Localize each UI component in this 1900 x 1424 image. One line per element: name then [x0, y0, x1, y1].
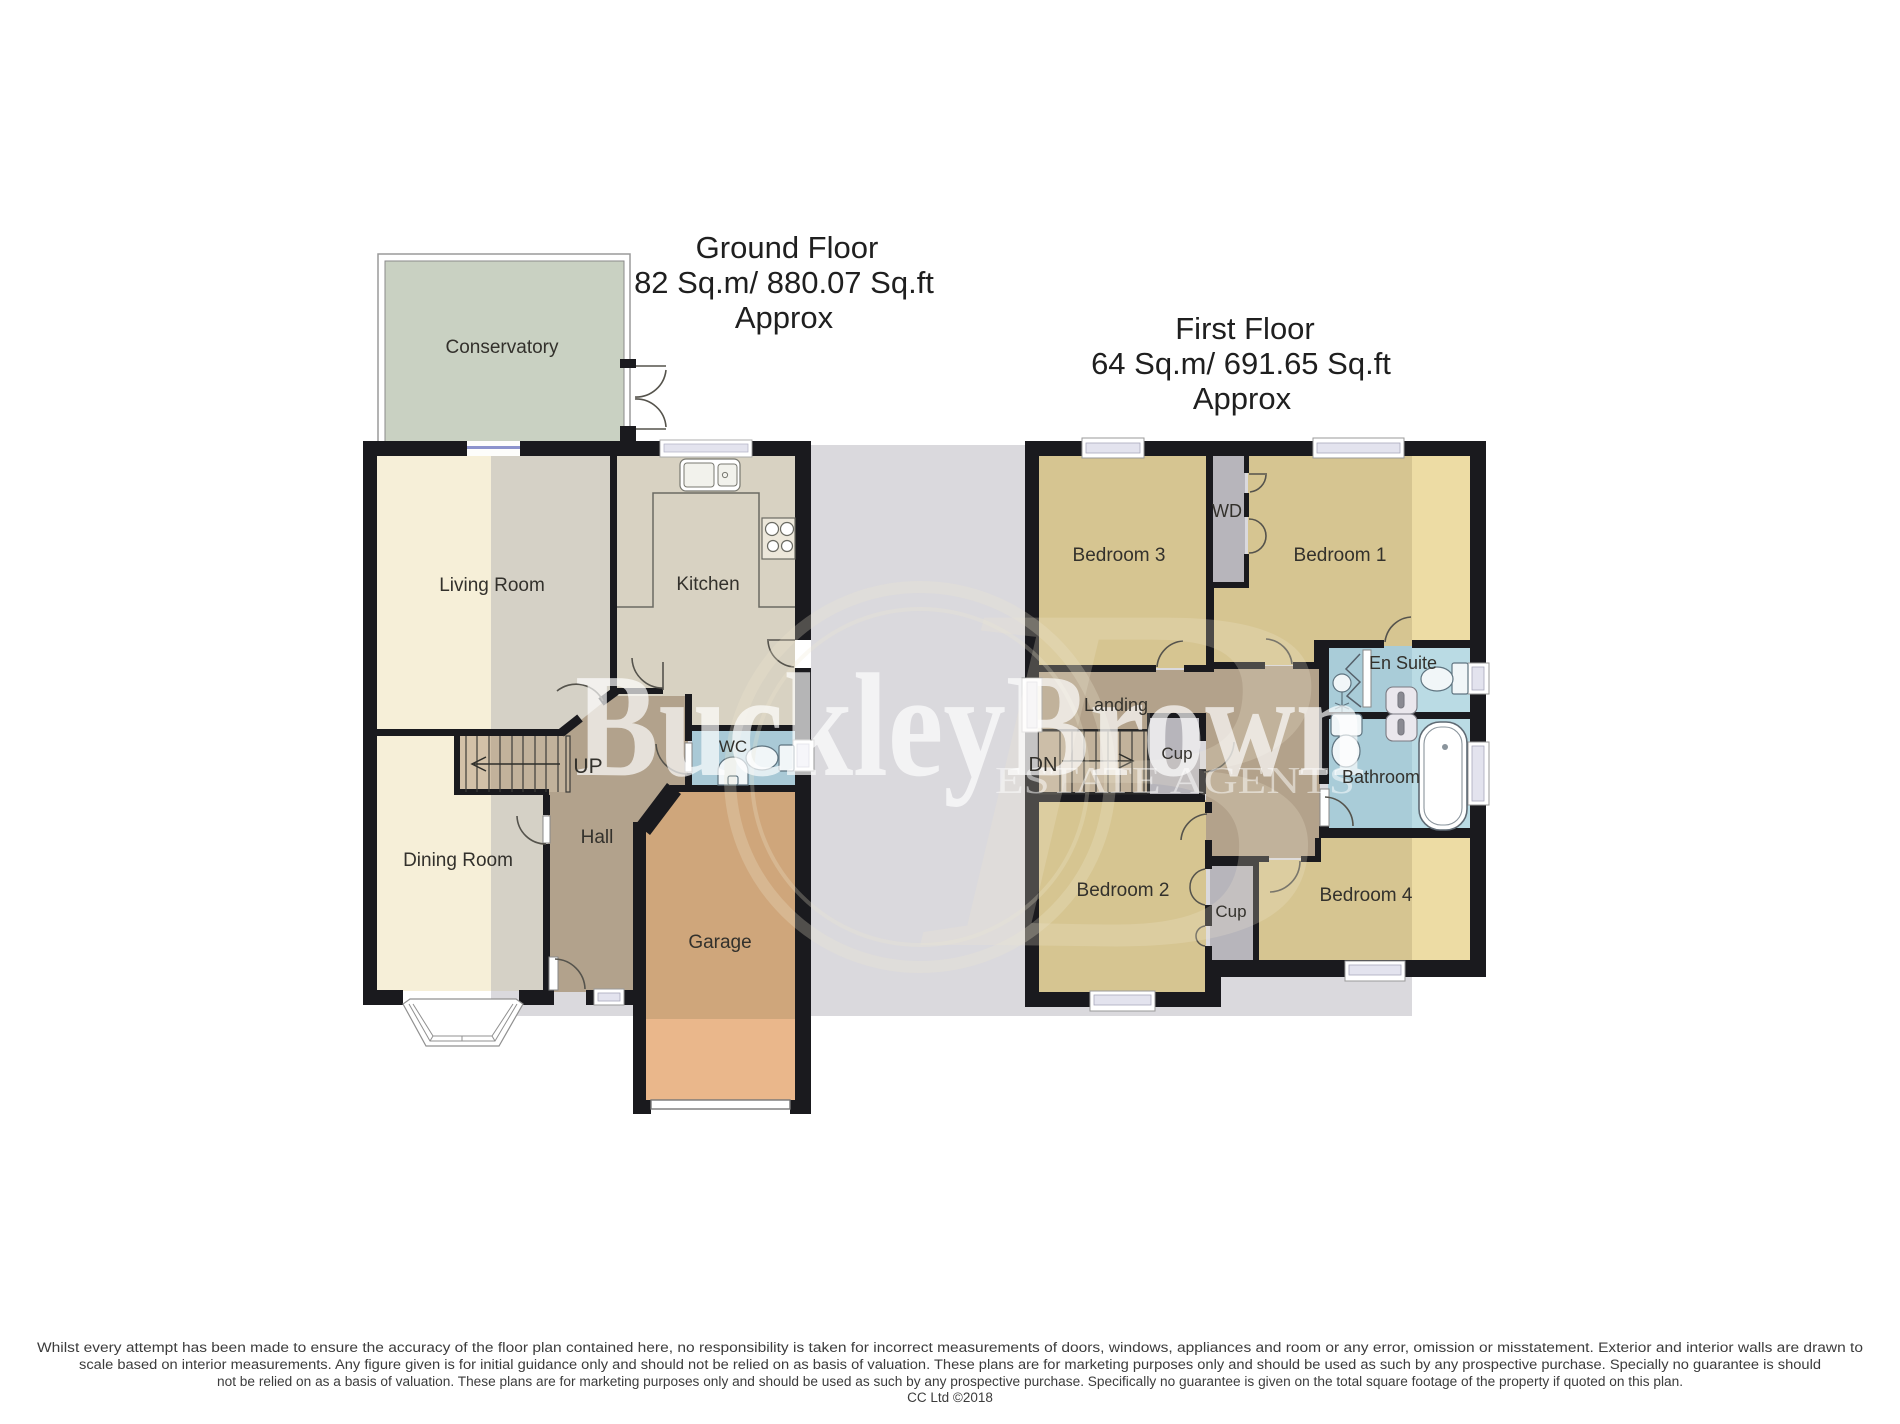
svg-text:Kitchen: Kitchen	[676, 574, 739, 595]
svg-text:82 Sq.m/ 880.07 Sq.ft: 82 Sq.m/ 880.07 Sq.ft	[634, 265, 934, 300]
svg-text:scale based on interior measur: scale based on interior measurements. An…	[79, 1357, 1821, 1372]
svg-text:not be relied on as a basis of: not be relied on as a basis of valuation…	[217, 1374, 1683, 1389]
svg-text:Cup: Cup	[1161, 744, 1192, 763]
svg-text:Bedroom 3: Bedroom 3	[1073, 545, 1166, 566]
svg-text:WC: WC	[719, 737, 747, 756]
svg-text:Cup: Cup	[1215, 902, 1246, 921]
svg-text:Garage: Garage	[688, 932, 751, 953]
svg-text:64 Sq.m/ 691.65 Sq.ft: 64 Sq.m/ 691.65 Sq.ft	[1091, 346, 1391, 381]
svg-text:Hall: Hall	[581, 827, 614, 848]
svg-text:WD: WD	[1212, 501, 1242, 521]
svg-text:Bedroom 2: Bedroom 2	[1077, 880, 1170, 901]
svg-text:Bedroom 1: Bedroom 1	[1294, 545, 1387, 566]
svg-text:Ground Floor: Ground Floor	[696, 230, 879, 265]
svg-text:First Floor: First Floor	[1175, 311, 1315, 346]
svg-text:Bedroom 4: Bedroom 4	[1320, 885, 1413, 906]
svg-text:Dining Room: Dining Room	[403, 850, 513, 871]
svg-text:DN: DN	[1029, 754, 1058, 776]
svg-text:Approx: Approx	[735, 300, 834, 335]
svg-text:Living Room: Living Room	[439, 575, 545, 596]
svg-text:UP: UP	[573, 755, 602, 778]
svg-text:Approx: Approx	[1193, 381, 1292, 416]
svg-text:Landing: Landing	[1084, 695, 1148, 715]
svg-text:CC Ltd ©2018: CC Ltd ©2018	[907, 1390, 993, 1405]
svg-text:En Suite: En Suite	[1369, 653, 1437, 673]
svg-text:Bathroom: Bathroom	[1342, 767, 1420, 787]
svg-text:Conservatory: Conservatory	[446, 337, 559, 358]
svg-text:Whilst every attempt has been: Whilst every attempt has been made to en…	[37, 1340, 1863, 1355]
